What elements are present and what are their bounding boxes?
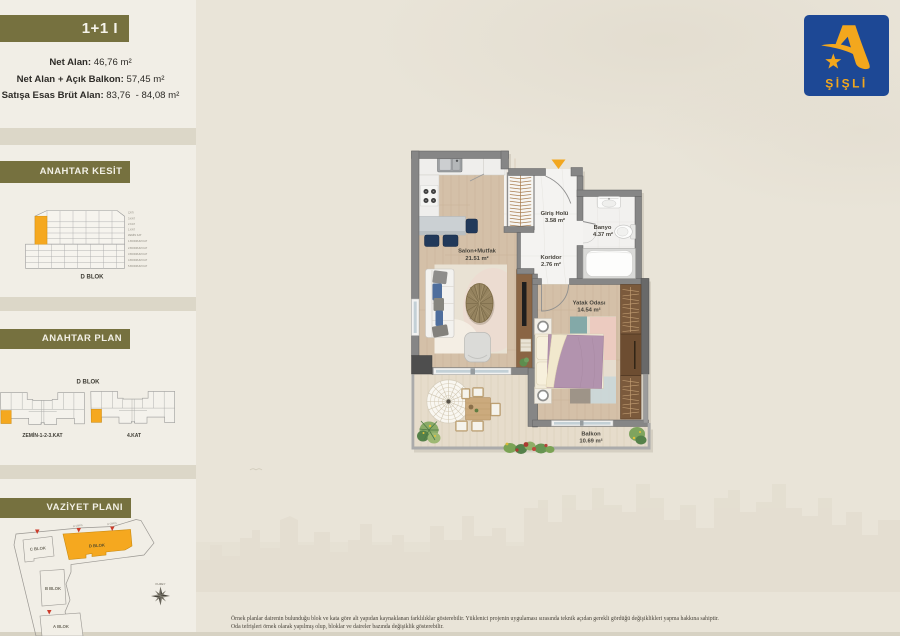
svg-text:4.37 m²: 4.37 m² (593, 231, 613, 238)
svg-text:ÇATI: ÇATI (128, 210, 134, 214)
svg-text:2.KAT: 2.KAT (128, 222, 135, 226)
svg-text:5.BODRUM KAT: 5.BODRUM KAT (128, 264, 148, 268)
svg-text:Salon+Mutfak: Salon+Mutfak (458, 249, 497, 255)
svg-text:1.BODRUM KAT: 1.BODRUM KAT (128, 239, 148, 243)
svg-text:2.76 m²: 2.76 m² (541, 261, 561, 268)
svg-text:B BLOK: B BLOK (45, 586, 61, 591)
svg-text:B GİRİŞ: B GİRİŞ (73, 522, 83, 528)
svg-text:10.69 m²: 10.69 m² (579, 437, 602, 444)
svg-text:KUZEY: KUZEY (155, 582, 165, 586)
svg-text:4.KAT: 4.KAT (127, 433, 141, 439)
svg-text:A BLOK: A BLOK (53, 624, 69, 629)
svg-text:21.51 m²: 21.51 m² (465, 255, 488, 262)
svg-text:ŞİŞLİ: ŞİŞLİ (825, 76, 868, 91)
svg-text:3.BODRUM KAT: 3.BODRUM KAT (128, 252, 148, 256)
svg-text:D GİRİŞ: D GİRİŞ (107, 520, 118, 526)
svg-text:Koridor: Koridor (541, 255, 563, 261)
svg-text:Giriş Holü: Giriş Holü (541, 211, 569, 217)
svg-text:4.BODRUM KAT: 4.BODRUM KAT (128, 258, 148, 262)
svg-text:D BLOK: D BLOK (81, 275, 105, 281)
svg-text:3.58 m²: 3.58 m² (545, 217, 565, 224)
svg-text:Yatak Odası: Yatak Odası (573, 301, 606, 307)
svg-text:1.KAT: 1.KAT (128, 228, 135, 232)
svg-text:14.54 m²: 14.54 m² (577, 306, 600, 313)
svg-text:D BLOK: D BLOK (77, 380, 101, 386)
svg-text:2.BODRUM KAT: 2.BODRUM KAT (128, 246, 148, 250)
svg-text:ZEMİN KAT: ZEMİN KAT (128, 232, 142, 237)
svg-text:Balkon: Balkon (581, 431, 601, 437)
svg-text:3.KAT: 3.KAT (128, 216, 135, 220)
svg-text:Banyo: Banyo (594, 225, 612, 231)
svg-text:ZEMİN-1-2-3.KAT: ZEMİN-1-2-3.KAT (22, 432, 62, 439)
